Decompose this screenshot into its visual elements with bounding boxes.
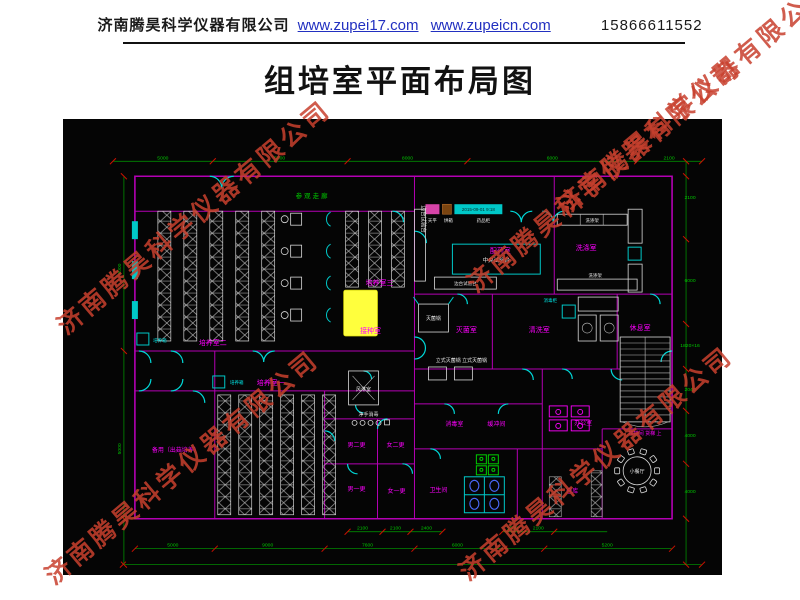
rack-column <box>236 211 249 341</box>
oven-box <box>442 204 451 214</box>
room-label: 培养室一 <box>257 378 285 387</box>
balance-box <box>425 204 439 214</box>
room-label: 备用（出菇培养） <box>152 446 200 454</box>
rack-column <box>369 211 382 287</box>
page: 济南腾昊科学仪器有限公司 www.zupei17.com www.zupeicn… <box>0 0 800 600</box>
room-label: 卫生间 <box>429 486 447 494</box>
dim-label: 6000 <box>685 278 696 284</box>
rack-column <box>302 395 315 515</box>
dim-label: 2040 <box>685 387 696 393</box>
equipment-label-cyan: 培养箱 <box>230 379 244 386</box>
phone-number: 15866611552 <box>601 17 703 34</box>
corridor-label: 参观走廊 <box>296 191 330 200</box>
room-label: 男二更 <box>348 442 366 449</box>
room-label: 清洗室 <box>529 325 550 334</box>
rack-column <box>392 211 405 287</box>
equipment-label: 中央试验台 <box>483 256 511 264</box>
equipment-label-cyan: 消毒柜 <box>544 297 558 304</box>
dim-label: 2100 <box>685 195 696 201</box>
datestamp-text: 2015-09-01 9:18 <box>462 207 495 212</box>
equipment-label: 净手消毒 <box>359 411 379 418</box>
rack-column <box>218 395 231 515</box>
room-label: 配药室 <box>490 246 511 255</box>
header-rule <box>123 42 685 44</box>
room-label: 缓冲间 <box>487 420 505 428</box>
dim-label: 9000 <box>117 263 123 274</box>
rack-column <box>210 211 223 341</box>
room-label: 女二更 <box>387 441 405 449</box>
room-label: 女一更 <box>388 487 406 495</box>
equipment-label: 边台试验台 <box>454 280 477 287</box>
dim-label: 7600 <box>362 543 373 549</box>
rack-column <box>184 211 197 341</box>
room-label: 灭菌室 <box>456 325 477 334</box>
dim-label: 4000 <box>685 489 696 495</box>
equipment-label: 烘箱 <box>444 217 453 224</box>
dim-label: 2100 <box>357 526 368 532</box>
equipment-label: 灭菌锅 <box>426 315 441 322</box>
equipment-label: 洗涤架 <box>588 272 602 279</box>
rack-column <box>239 395 252 515</box>
room-label: 接种室 <box>360 326 381 335</box>
equipment-label: 风淋室 <box>356 386 371 393</box>
dim-label: 2100 <box>664 155 675 161</box>
rack-column <box>260 395 273 515</box>
dim-label: 5000 <box>117 443 123 454</box>
equipment-label: 小餐厅 <box>630 468 645 475</box>
rack-column <box>281 395 294 515</box>
room-label: 办公室 <box>574 419 592 427</box>
dim-label: 2100 <box>390 526 401 532</box>
page-title: 组培室平面布局图 <box>0 56 800 101</box>
plan-background <box>63 119 722 574</box>
dim-label: 2100 <box>533 526 544 532</box>
side-bench-label: 边台试验台 <box>419 205 427 233</box>
dim-label: 2400 <box>421 526 432 532</box>
equipment-label: 药品柜 <box>477 217 491 224</box>
room-label: 洗涤室 <box>576 243 597 252</box>
room-label: 男一更 <box>348 486 366 493</box>
rack-column <box>262 211 275 341</box>
link-zupeicn[interactable]: www.zupeicn.com <box>431 17 551 34</box>
dim-label: 6000 <box>547 155 558 161</box>
room-label: 休息室 <box>630 323 651 332</box>
equipment-label-cyan: 培养箱 <box>153 337 167 344</box>
dim-label: 5000 <box>157 155 168 161</box>
dim-label: 6000 <box>452 543 463 549</box>
rack-column <box>346 211 359 287</box>
dim-label: 5000 <box>167 543 178 549</box>
dim-label: 5200 <box>602 543 613 549</box>
equipment-label: 立式灭菌锅 立式灭菌锅 <box>436 357 487 364</box>
floor-plan-svg: 5000500080006000210021002100240015002100… <box>63 119 722 575</box>
dim-label: 5000 <box>274 155 285 161</box>
dim-label: 8000 <box>402 155 413 161</box>
dim-label: 1820×16 <box>680 343 700 349</box>
room-label: 消毒室 <box>445 420 463 428</box>
dim-label: 9000 <box>262 543 273 549</box>
rack-column <box>158 211 171 341</box>
link-zupei17[interactable]: www.zupei17.com <box>298 17 419 34</box>
dim-label: 1500 <box>507 526 518 532</box>
company-name: 济南腾昊科学仪器有限公司 <box>97 17 289 34</box>
header: 济南腾昊科学仪器有限公司 www.zupei17.com www.zupeicn… <box>0 14 800 35</box>
rack-column <box>323 395 336 515</box>
room-label: 培养室二 <box>199 338 227 347</box>
equipment-label: 洗涤架 <box>585 217 599 224</box>
room-label: 仓库 <box>566 487 578 495</box>
dim-label: 4000 <box>685 433 696 439</box>
floor-plan: 5000500080006000210021002100240015002100… <box>63 119 722 575</box>
toilet-fixtures <box>464 477 504 513</box>
room-label: 培养室三 <box>366 278 394 287</box>
room-label: 楼梯间 货梯 上 <box>629 430 662 437</box>
